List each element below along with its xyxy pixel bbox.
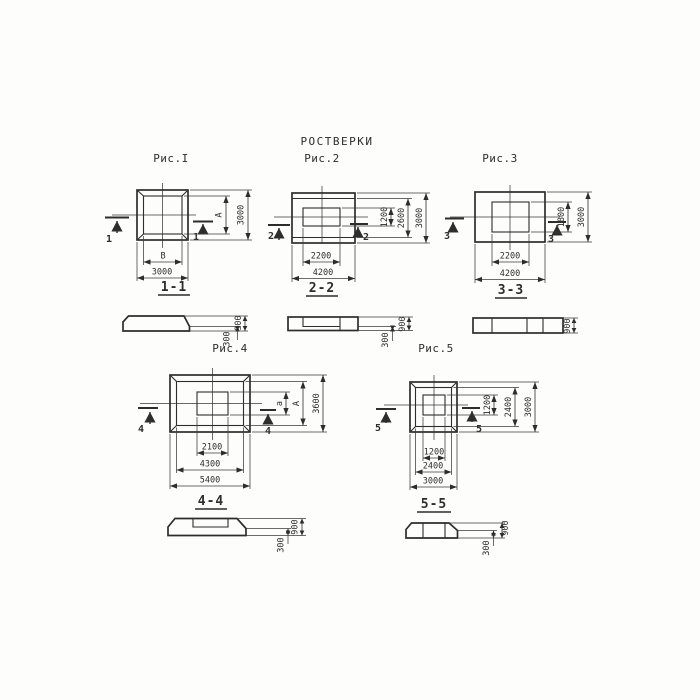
- dim-text: 900: [563, 318, 573, 333]
- centerlines: [450, 185, 560, 250]
- figure-4-plan: Рис.4 4 4 2100 4300 5400 а А 3600 4-4: [138, 342, 327, 509]
- figure-3-plan: Рис.3 3 3 2200 4200 1800 3000 3-3: [444, 152, 592, 298]
- section-label: 3-3: [498, 283, 524, 298]
- plan-outer-edge: [292, 193, 355, 243]
- recess-notch: [303, 317, 340, 331]
- dim-text: 2200: [500, 252, 520, 262]
- dim-text: а: [275, 401, 285, 406]
- figure-5-label: Рис.5: [418, 342, 454, 355]
- figure-1-plan: Рис.I 1 1 В 3000 А 3000 1-1: [105, 152, 252, 295]
- dim-text: 1200: [380, 207, 390, 227]
- dim-text: А: [292, 401, 302, 406]
- dim-text: 4300: [200, 460, 220, 470]
- dim-text: 4200: [500, 269, 520, 279]
- dim-text: 2400: [504, 397, 514, 417]
- dim-text: 3000: [423, 477, 443, 487]
- dim-text: 300: [381, 332, 391, 347]
- cut-number: 2: [268, 231, 274, 242]
- section-label: 2-2: [309, 281, 335, 296]
- drawing-sheet: РОСТВЕРКИ Рис.I 1 1 В 3000 А 3000 1-1 30…: [0, 0, 700, 700]
- centerlines: [112, 183, 196, 248]
- plan-outer-edge: [410, 382, 457, 432]
- dim-text: 2200: [311, 252, 331, 262]
- recess-notch: [193, 519, 228, 528]
- dim-text: 3000: [415, 208, 425, 228]
- dim-text: 3000: [237, 205, 247, 225]
- dim-text: 900: [291, 519, 301, 534]
- section-outline: [288, 317, 358, 331]
- cut-number: 1: [106, 234, 112, 245]
- cut-number: 3: [548, 234, 554, 245]
- dim-text: 4200: [313, 268, 333, 278]
- dim-text: 1200: [424, 448, 444, 458]
- dim-text: 2400: [423, 462, 443, 472]
- section-4-4-profile: 300 900: [168, 519, 306, 553]
- section-2-2-profile: 300 900: [288, 316, 413, 347]
- figure-1-label: Рис.I: [153, 152, 189, 165]
- cut-number: 4: [138, 424, 144, 435]
- section-label: 5-5: [421, 497, 447, 512]
- dim-text: 5400: [200, 476, 220, 486]
- dim-text: В: [160, 252, 165, 262]
- centerlines: [274, 186, 368, 243]
- figure-4-label: Рис.4: [212, 342, 248, 355]
- section-label: 1-1: [161, 280, 187, 295]
- section-outline: [406, 523, 458, 538]
- extension-lines: [410, 382, 539, 490]
- dim-text: 900: [501, 520, 511, 535]
- figure-3-label: Рис.3: [482, 152, 518, 165]
- segment-joints: [492, 318, 543, 333]
- section-3-3-profile: 900: [473, 318, 578, 334]
- section-label: 4-4: [198, 494, 224, 509]
- dim-text: 900: [398, 316, 408, 331]
- dim-text: 300: [277, 537, 287, 552]
- cut-plane-lines: [105, 218, 213, 222]
- grillage-technical-drawing: РОСТВЕРКИ Рис.I 1 1 В 3000 А 3000 1-1 30…: [0, 0, 700, 700]
- figure-5-plan: Рис.5 5 5 1200 2400 3000 1200 2400 3000 …: [375, 342, 539, 512]
- section-outline: [123, 316, 190, 331]
- cut-plane-lines: [268, 224, 368, 225]
- dim-text: 2100: [202, 443, 222, 453]
- dim-text: 3600: [312, 393, 322, 413]
- segment-joints: [423, 523, 445, 538]
- edge-band-lines: [292, 199, 355, 238]
- dim-text: 3000: [524, 397, 534, 417]
- dim-text: 300: [482, 540, 492, 555]
- dim-text: А: [215, 212, 225, 217]
- figure-2-plan: Рис.2 2 2 2200 4200 1200 2600 3000 2-2: [268, 152, 430, 296]
- section-outline: [473, 318, 563, 333]
- dim-text: 2600: [397, 208, 407, 228]
- cut-number: 5: [476, 424, 482, 435]
- cut-number: 4: [265, 426, 271, 437]
- cut-plane-lines: [445, 219, 566, 223]
- dim-text: 3000: [152, 268, 172, 278]
- dim-text: 3000: [577, 207, 587, 227]
- figure-2-label: Рис.2: [304, 152, 340, 165]
- dim-text: 900: [234, 315, 244, 330]
- dim-text: 1200: [483, 395, 493, 415]
- dim-text: 1800: [557, 207, 567, 227]
- cut-number: 5: [375, 423, 381, 434]
- plan-top-face: [416, 388, 452, 427]
- cut-plane-lines: [376, 408, 480, 409]
- sheet-title: РОСТВЕРКИ: [300, 135, 373, 148]
- cut-number: 3: [444, 231, 450, 242]
- corner-bevels: [410, 382, 457, 432]
- section-5-5-profile: 300 900: [406, 520, 511, 555]
- cut-plane-lines: [138, 408, 276, 410]
